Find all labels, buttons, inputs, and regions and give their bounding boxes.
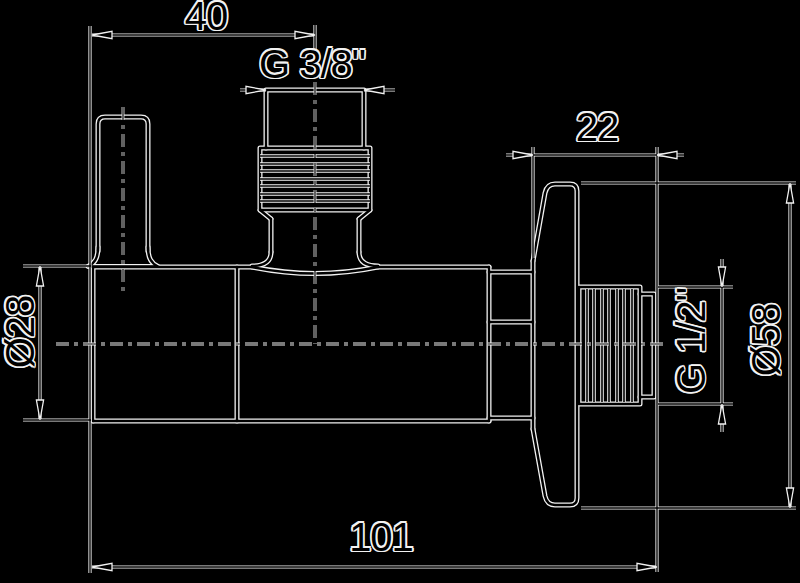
dimension-label-body-diameter-28: Ø28 [0, 296, 43, 369]
dimension-label-depth-22: 22 [576, 105, 619, 150]
dimension-label-flange-diameter-58: Ø58 [744, 304, 789, 377]
dimension-label-inlet-thread-g38: G 3/8" [259, 42, 365, 87]
dimension-label-outlet-thread-g12: G 1/2" [669, 288, 714, 394]
dimension-label-total-length-101: 101 [349, 515, 413, 560]
dimension-label-width-40: 40 [185, 0, 228, 39]
valve-technical-drawing: 40 G 3/8" 22 Ø28 G 1/2" Ø58 101 [0, 0, 800, 583]
